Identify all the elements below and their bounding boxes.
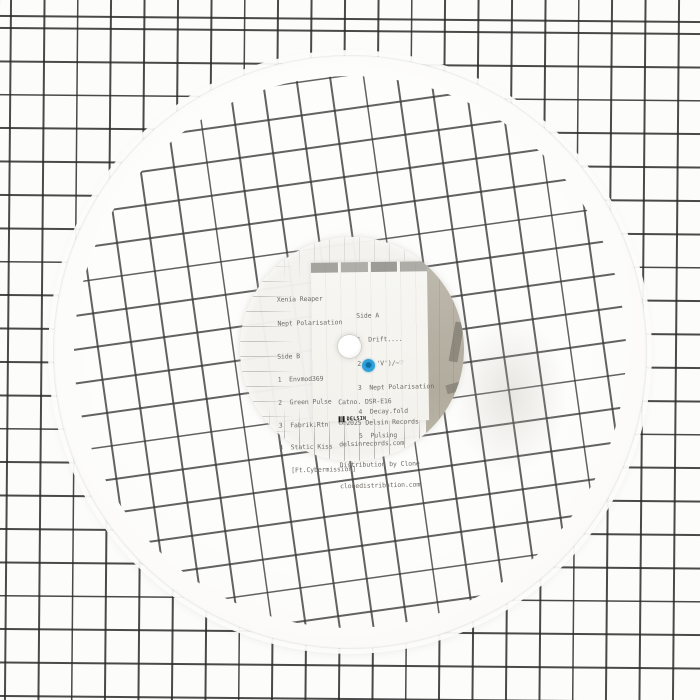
distributor-website: clonedistribution.com <box>340 481 420 490</box>
side-a-heading: Side A <box>356 310 432 320</box>
album-title: Nept Polarisation <box>277 318 342 327</box>
imprint-block: Catno. DSR-E16 ©℗2025 Delsin Records del… <box>338 384 421 505</box>
clear-vinyl-record: Xenia Reaper Nept Polarisation Side A 1 … <box>53 55 647 649</box>
scan-scene: Xenia Reaper Nept Polarisation Side A 1 … <box>0 0 700 700</box>
delsin-logo-text: DELSIN <box>347 416 367 422</box>
label-website: delsinrecords.com <box>339 439 419 448</box>
spindle-hole <box>338 335 361 358</box>
track-line: 1 Envmod369 <box>278 375 354 384</box>
artist-name: Xenia Reaper <box>277 294 342 303</box>
catalog-number: Catno. DSR-E16 <box>338 398 418 407</box>
distribution-line: Distribution by Clone <box>340 460 420 469</box>
delsin-logo: DELSIN <box>339 416 367 423</box>
artist-title-block: Xenia Reaper Nept Polarisation <box>276 278 342 343</box>
blue-dot-sticker <box>362 359 375 372</box>
delsin-logo-icon <box>339 416 345 422</box>
track-line: 1 Drift.... <box>357 334 433 344</box>
